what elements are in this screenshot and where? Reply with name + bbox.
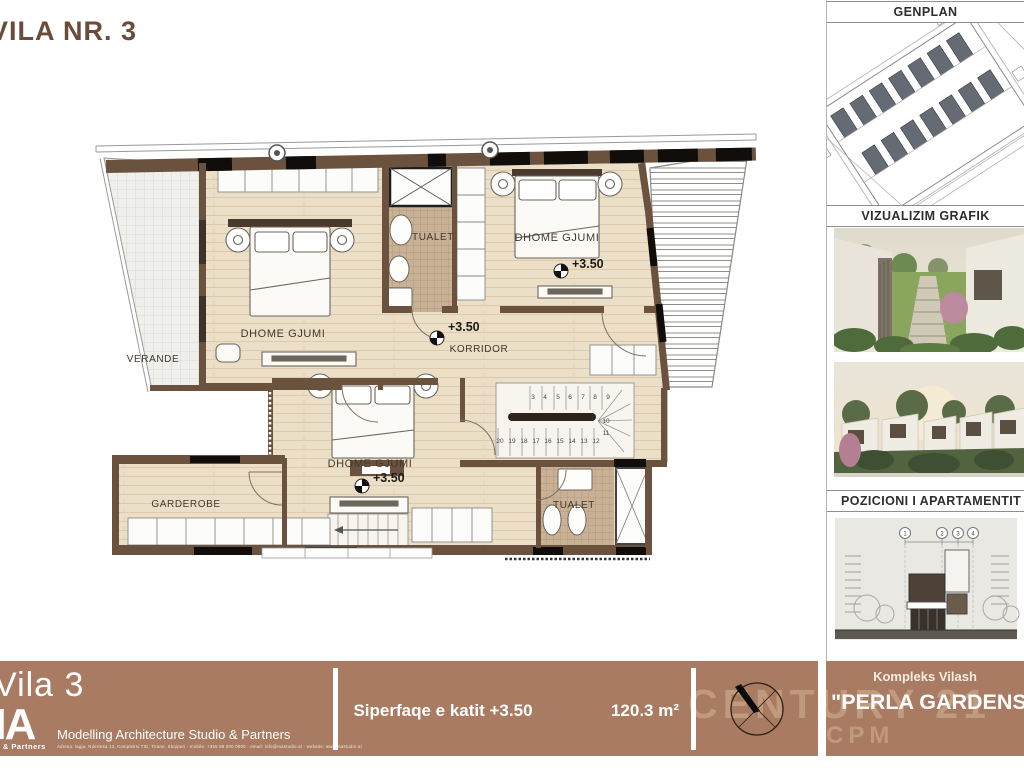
visualization-header: VIZUALIZIM GRAFIK: [827, 205, 1024, 227]
company-address: Adresa: lagja, Ndertesa 13, Kompleksi TI…: [57, 744, 362, 749]
floor-plan: DHOME GJUMI TUALET DHOME GJUMI DHOME GJU…: [0, 0, 824, 660]
stair-handrail: [508, 413, 596, 421]
render-garden-view: [834, 228, 1024, 352]
level-value-bedroom3: +3.50: [373, 471, 405, 485]
lower-stair: [328, 514, 408, 546]
svg-text:4: 4: [543, 394, 547, 401]
page-title: VILA NR. 3: [0, 16, 137, 47]
room-label-bedroom-3: DHOME GJUMI: [328, 458, 413, 470]
genplan-drawing: [827, 23, 1024, 205]
room-label-toilet-1: TUALET: [412, 232, 454, 243]
svg-text:19: 19: [508, 438, 516, 445]
room-label-corridor: KORRIDOR: [450, 344, 509, 355]
svg-text:15: 15: [556, 438, 564, 445]
room-label-bedroom-1: DHOME GJUMI: [241, 328, 326, 340]
complex-label: Kompleks Vilash: [826, 669, 1024, 684]
sidebar: GENPLAN: [826, 0, 1024, 661]
ma-logo-subtitle: Studio & Partners: [0, 742, 46, 751]
sheet: DHOME GJUMI TUALET DHOME GJUMI DHOME GJU…: [0, 0, 1024, 768]
svg-text:10: 10: [602, 418, 610, 425]
room-label-bedroom-2: DHOME GJUMI: [515, 232, 600, 244]
svg-text:5: 5: [556, 394, 560, 401]
footer-divider-2: [691, 668, 696, 750]
room-label-veranda: VERANDE: [127, 354, 180, 365]
svg-text:7: 7: [581, 394, 585, 401]
svg-text:9: 9: [606, 394, 610, 401]
svg-text:8: 8: [593, 394, 597, 401]
elevation-drawing: 1 2 3 4: [827, 512, 1024, 648]
svg-text:13: 13: [580, 438, 588, 445]
footer-divider-gap: [818, 661, 826, 756]
svg-text:6: 6: [568, 394, 572, 401]
cpm-watermark: CPM: [826, 722, 894, 750]
company-name: Modelling Architecture Studio & Partners: [57, 727, 290, 742]
svg-text:14: 14: [568, 438, 576, 445]
render-villas-view: [834, 362, 1024, 477]
svg-text:12: 12: [592, 438, 600, 445]
svg-text:20: 20: [496, 438, 504, 445]
level-value-bedroom2: +3.50: [572, 257, 604, 271]
svg-text:16: 16: [544, 438, 552, 445]
room-label-wardrobe: GARDEROBE: [151, 499, 220, 510]
floor-area-value: 120.3 m²: [593, 701, 697, 721]
room-label-toilet-2: TUALET: [553, 500, 595, 511]
footer-divider-1: [333, 668, 338, 750]
svg-text:18: 18: [520, 438, 528, 445]
floor-area-label: Siperfaqe e katit +3.50: [343, 701, 543, 721]
level-value-corridor: +3.50: [448, 320, 480, 334]
svg-text:3: 3: [531, 394, 535, 401]
genplan-header: GENPLAN: [827, 1, 1024, 23]
compass-icon: [727, 680, 787, 740]
svg-text:11: 11: [603, 430, 610, 437]
position-header: POZICIONI I APARTAMENTIT NË OBJEKT: [827, 490, 1024, 512]
project-name: "PERLA GARDENS": [831, 690, 1024, 715]
svg-text:17: 17: [532, 438, 540, 445]
